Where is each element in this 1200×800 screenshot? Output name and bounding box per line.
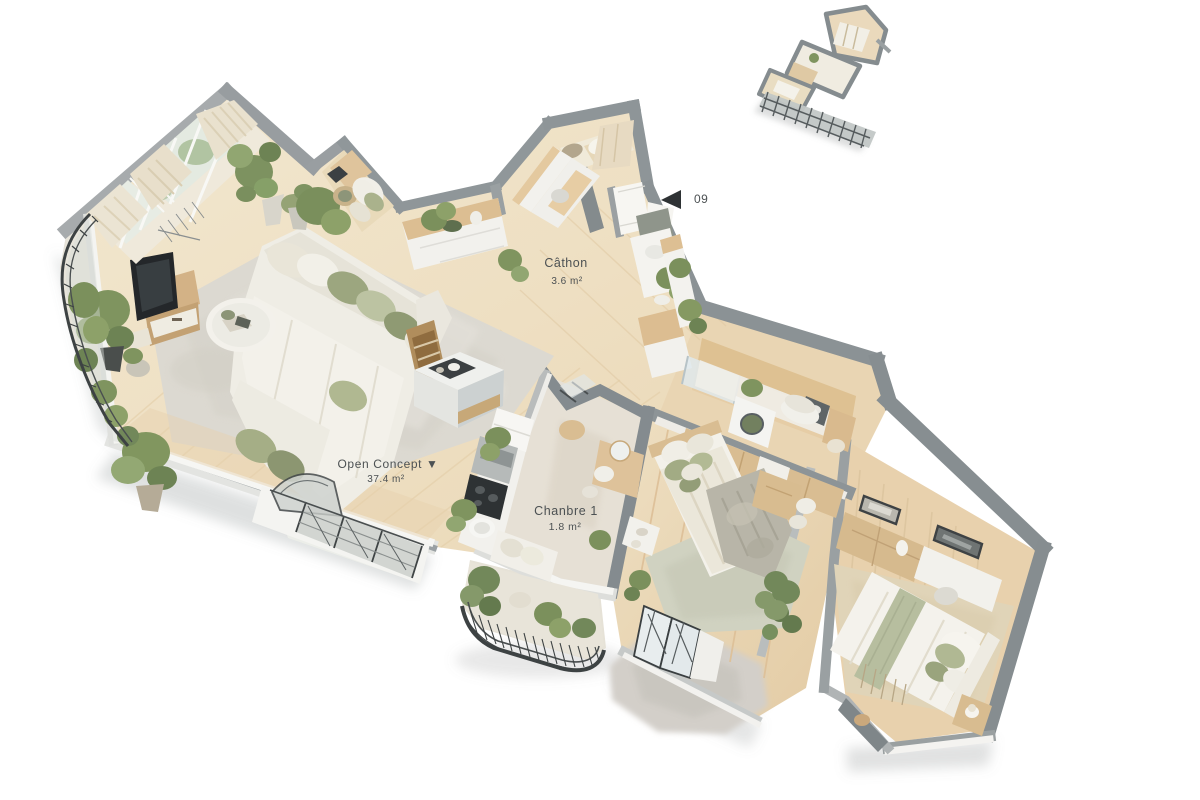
svg-text:Chanbre 1: Chanbre 1 (534, 504, 598, 518)
svg-text:1.8 m²: 1.8 m² (549, 521, 582, 533)
svg-text:Câthon: Câthon (544, 256, 587, 270)
svg-text:37.4 m²: 37.4 m² (367, 474, 405, 485)
svg-text:Open Concept ▼: Open Concept ▼ (338, 457, 439, 471)
svg-text:3.6 m²: 3.6 m² (551, 276, 583, 287)
svg-text:09: 09 (694, 192, 708, 206)
